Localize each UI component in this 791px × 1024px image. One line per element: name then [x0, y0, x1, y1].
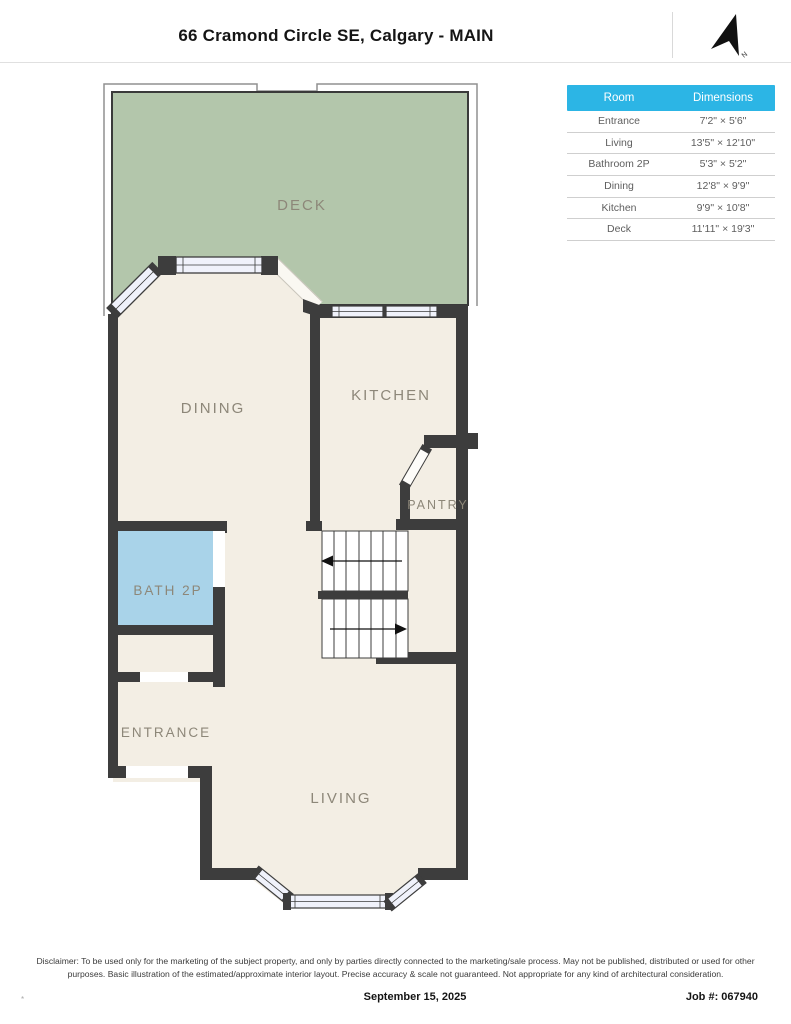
pantry-label: PANTRY — [407, 498, 469, 512]
wall-stairs-stub — [306, 521, 322, 531]
wall-bath-bottom — [108, 625, 225, 635]
wall-left-exterior — [108, 314, 118, 778]
wall-bath-top — [108, 521, 223, 531]
wall-pantry-top — [424, 435, 456, 448]
wall-stairs-divider — [318, 591, 408, 599]
dining-bay-window-top — [176, 257, 262, 273]
floorplan-sheet: 66 Cramond Circle SE, Calgary - MAIN N R… — [0, 0, 791, 1024]
wall-entrance-top-right — [188, 672, 225, 682]
entrance-door-opening — [140, 672, 188, 682]
footer-date: September 15, 2025 — [265, 991, 565, 1003]
floorplan-drawing: DECK DINING KITCHEN PANTRY BATH 2P ENTRA… — [0, 0, 791, 1024]
wall-dining-kitchen — [310, 311, 320, 523]
wall-front-corner — [188, 766, 212, 880]
wall-pantry-bottom — [396, 519, 466, 530]
room-bath — [118, 531, 213, 627]
front-door-opening — [126, 766, 188, 778]
disclaimer-text: Disclaimer: To be used only for the mark… — [33, 955, 758, 982]
wall-front-left — [108, 766, 126, 778]
bath-door-opening — [213, 531, 225, 587]
corner-mark: * — [21, 995, 24, 1004]
wall-living-bottom-right — [418, 868, 466, 880]
footer-job-number: Job #: 067940 — [555, 991, 758, 1003]
living-bay-window-bottom — [283, 893, 393, 910]
wall-entrance-top-left — [108, 672, 140, 682]
room-entrance — [113, 628, 218, 782]
wall-living-bottom-left — [200, 868, 258, 880]
room-dining — [113, 269, 320, 528]
wall-pantry-bump — [456, 433, 478, 449]
dining-label: DINING — [181, 400, 246, 417]
wall-bay-corner-right — [261, 256, 278, 275]
wall-right-exterior — [456, 305, 468, 880]
bath-label: BATH 2P — [133, 583, 202, 598]
deck-label: DECK — [277, 197, 327, 214]
entrance-label: ENTRANCE — [121, 725, 211, 740]
room-kitchen — [313, 311, 466, 528]
kitchen-label: KITCHEN — [351, 387, 431, 404]
living-label: LIVING — [310, 790, 371, 807]
